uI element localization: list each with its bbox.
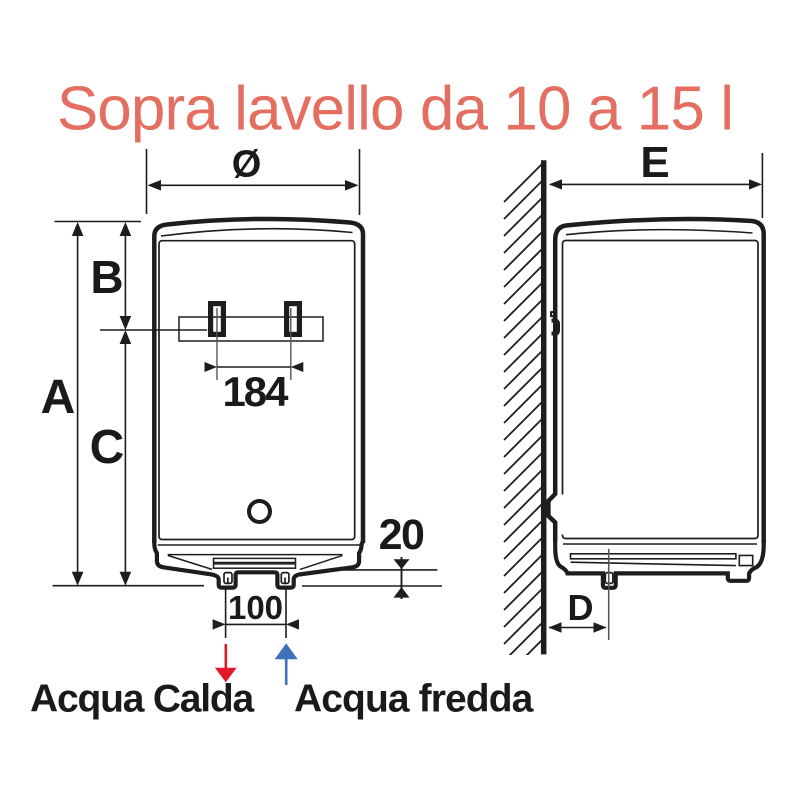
svg-text:C: C <box>90 421 125 474</box>
svg-text:Acqua fredda: Acqua fredda <box>294 678 534 721</box>
svg-text:D: D <box>568 587 594 628</box>
svg-text:A: A <box>41 371 76 424</box>
svg-text:20: 20 <box>379 511 424 559</box>
svg-text:Ø: Ø <box>232 144 262 186</box>
svg-text:Sopra lavello da 10 a 15 l: Sopra lavello da 10 a 15 l <box>57 75 733 144</box>
svg-text:184: 184 <box>222 368 289 415</box>
svg-text:Acqua Calda: Acqua Calda <box>30 678 255 721</box>
svg-text:B: B <box>90 251 123 303</box>
svg-text:E: E <box>640 138 669 187</box>
svg-text:100: 100 <box>228 589 283 626</box>
